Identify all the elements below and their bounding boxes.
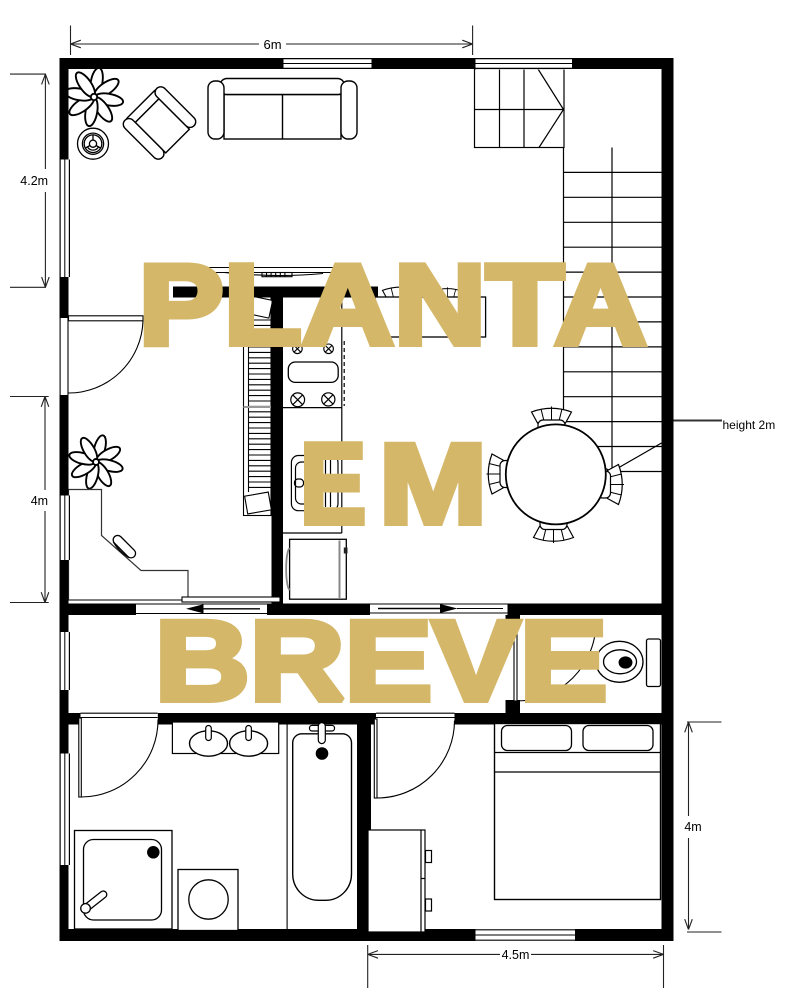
svg-text:4m: 4m (684, 820, 701, 834)
svg-text:4m: 4m (31, 494, 48, 508)
svg-text:6m: 6m (263, 37, 281, 52)
svg-text:M: M (379, 421, 487, 548)
svg-text:4.5m: 4.5m (502, 948, 530, 962)
svg-text:4.2m: 4.2m (20, 174, 48, 188)
svg-text:BREVE: BREVE (155, 598, 608, 725)
svg-text:E: E (300, 421, 366, 548)
svg-text:PLANTA: PLANTA (139, 242, 647, 369)
svg-text:height 2m: height 2m (723, 418, 776, 432)
